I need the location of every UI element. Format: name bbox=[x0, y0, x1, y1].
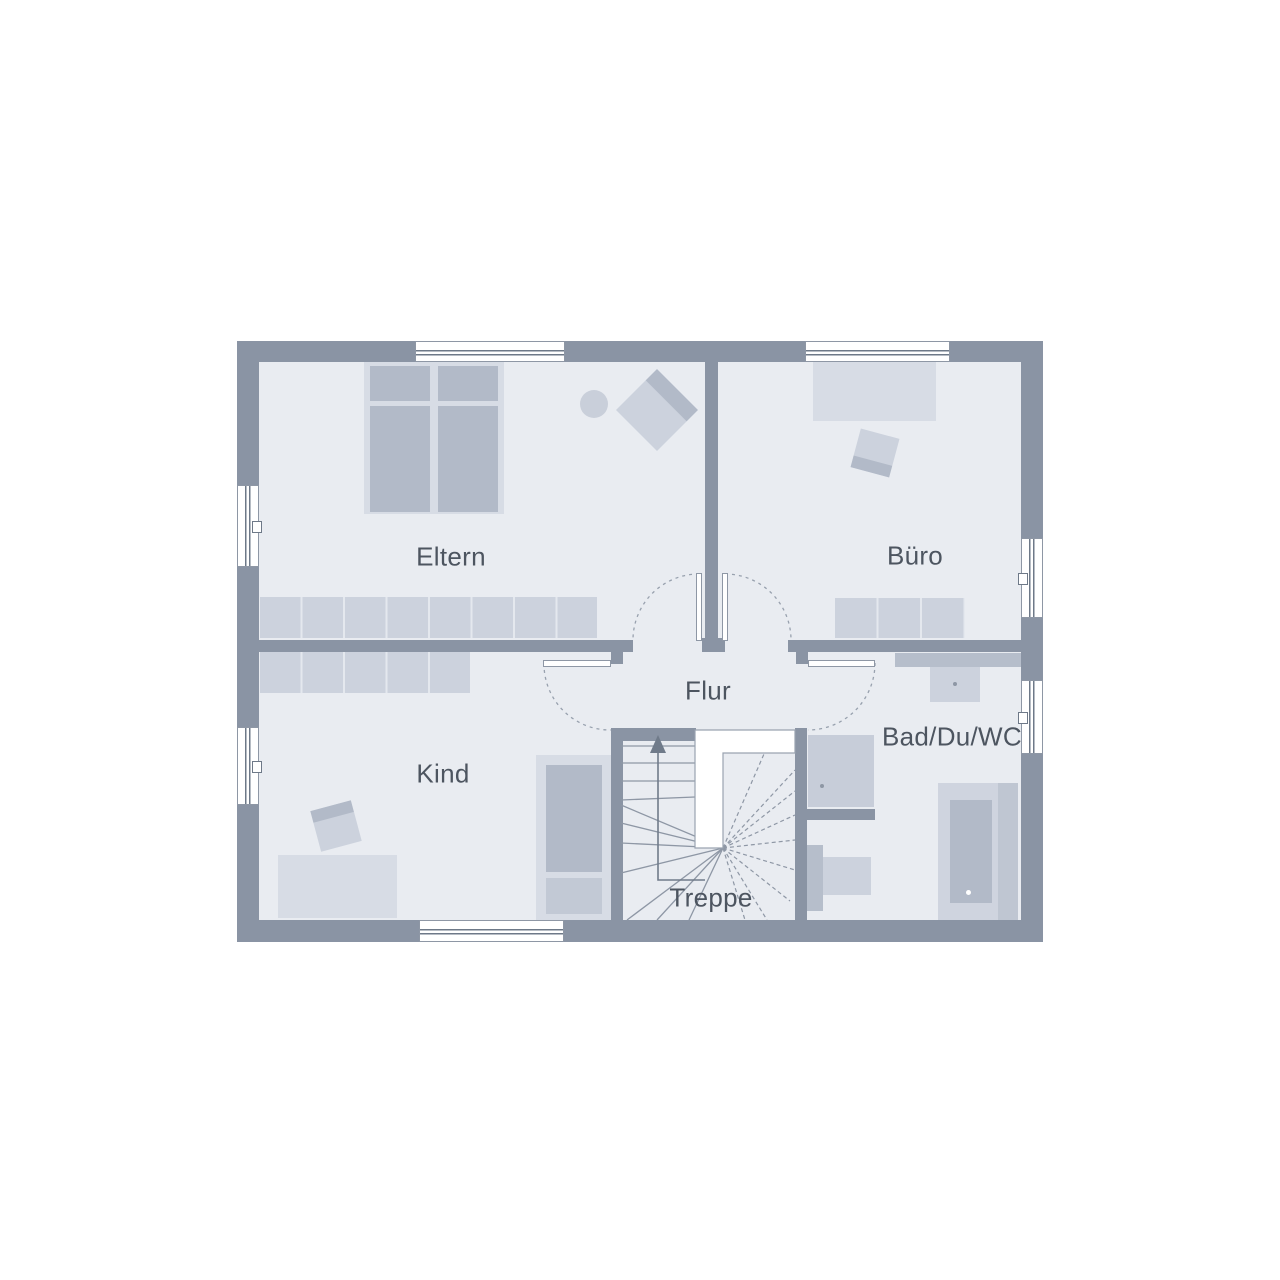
bed-pillow-right bbox=[438, 366, 498, 401]
window-right-bad bbox=[1021, 680, 1043, 754]
wall-divider-eltern-kind bbox=[259, 640, 633, 652]
chair-buero bbox=[851, 429, 900, 478]
door-arc-kind bbox=[544, 663, 611, 730]
wardrobe-eltern bbox=[260, 597, 597, 638]
room-label-kind: Kind bbox=[416, 759, 469, 790]
wall-divider-eltern-buero bbox=[705, 361, 718, 639]
bed-mattress-right bbox=[438, 406, 498, 512]
wardrobe-kind bbox=[260, 652, 470, 693]
chair-kind-backrest bbox=[310, 800, 354, 822]
wall-outer-right bbox=[1021, 341, 1043, 942]
window-top-eltern bbox=[415, 341, 565, 362]
window-left-kind bbox=[237, 727, 259, 805]
shower-tray bbox=[808, 735, 874, 807]
floor-plan: Eltern Büro Kind Flur Bad/Du/WC Treppe bbox=[237, 341, 1043, 942]
window-handle bbox=[1018, 573, 1028, 585]
window-bottom-kind bbox=[419, 920, 564, 942]
desk-buero bbox=[813, 361, 936, 421]
stairs-up-arrow bbox=[658, 749, 705, 880]
bed-kind-mattress bbox=[546, 765, 602, 872]
window-left-eltern bbox=[237, 485, 259, 567]
bathtub-drain-dot bbox=[966, 890, 971, 895]
desk-kind bbox=[278, 855, 397, 918]
wall-jamb-kind-door bbox=[611, 651, 623, 664]
sideboard-buero bbox=[835, 598, 965, 638]
window-top-buero bbox=[805, 341, 950, 362]
room-label-flur: Flur bbox=[685, 676, 731, 707]
door-leaf-kind bbox=[543, 660, 611, 667]
armchair-backrest bbox=[646, 369, 698, 421]
window-handle bbox=[252, 761, 262, 773]
chair-buero-backrest bbox=[851, 456, 893, 478]
room-label-treppe: Treppe bbox=[669, 883, 752, 914]
shower-drain-dot bbox=[820, 784, 824, 788]
vanity-counter bbox=[895, 653, 1021, 667]
window-handle bbox=[252, 521, 262, 533]
wall-jamb-bad-door bbox=[796, 651, 808, 664]
bathtub-shelf bbox=[998, 783, 1018, 920]
door-arc-eltern bbox=[633, 574, 699, 641]
room-label-buero: Büro bbox=[887, 541, 943, 572]
door-arc-bad bbox=[808, 663, 875, 730]
wall-stair-left bbox=[611, 728, 623, 920]
wall-bad-stub bbox=[807, 809, 875, 820]
wall-outer-left bbox=[237, 341, 259, 942]
bed-pillow-left bbox=[370, 366, 430, 401]
wc-cistern bbox=[807, 845, 823, 911]
window-right-buero bbox=[1021, 538, 1043, 618]
armchair-eltern bbox=[616, 369, 698, 451]
bed-mattress-left bbox=[370, 406, 430, 512]
washbasin-drain-dot bbox=[953, 682, 957, 686]
door-leaf-eltern bbox=[696, 573, 702, 641]
room-label-bad: Bad/Du/WC bbox=[882, 722, 1022, 753]
bed-kind-foot bbox=[546, 878, 602, 914]
bathtub-basin bbox=[950, 800, 992, 903]
door-arc-buero bbox=[725, 574, 791, 641]
side-table-round bbox=[580, 390, 608, 418]
stair-landing-void bbox=[695, 730, 795, 848]
wall-divider-buero-bad bbox=[788, 640, 1021, 652]
chair-kind bbox=[310, 800, 361, 851]
door-leaf-bad bbox=[808, 660, 875, 667]
wall-stair-right bbox=[795, 728, 807, 920]
door-leaf-buero bbox=[722, 573, 728, 641]
room-label-eltern: Eltern bbox=[416, 542, 486, 573]
wc-bowl bbox=[823, 857, 871, 895]
wall-outer-bottom bbox=[237, 920, 1043, 942]
wall-stair-top bbox=[611, 728, 696, 741]
